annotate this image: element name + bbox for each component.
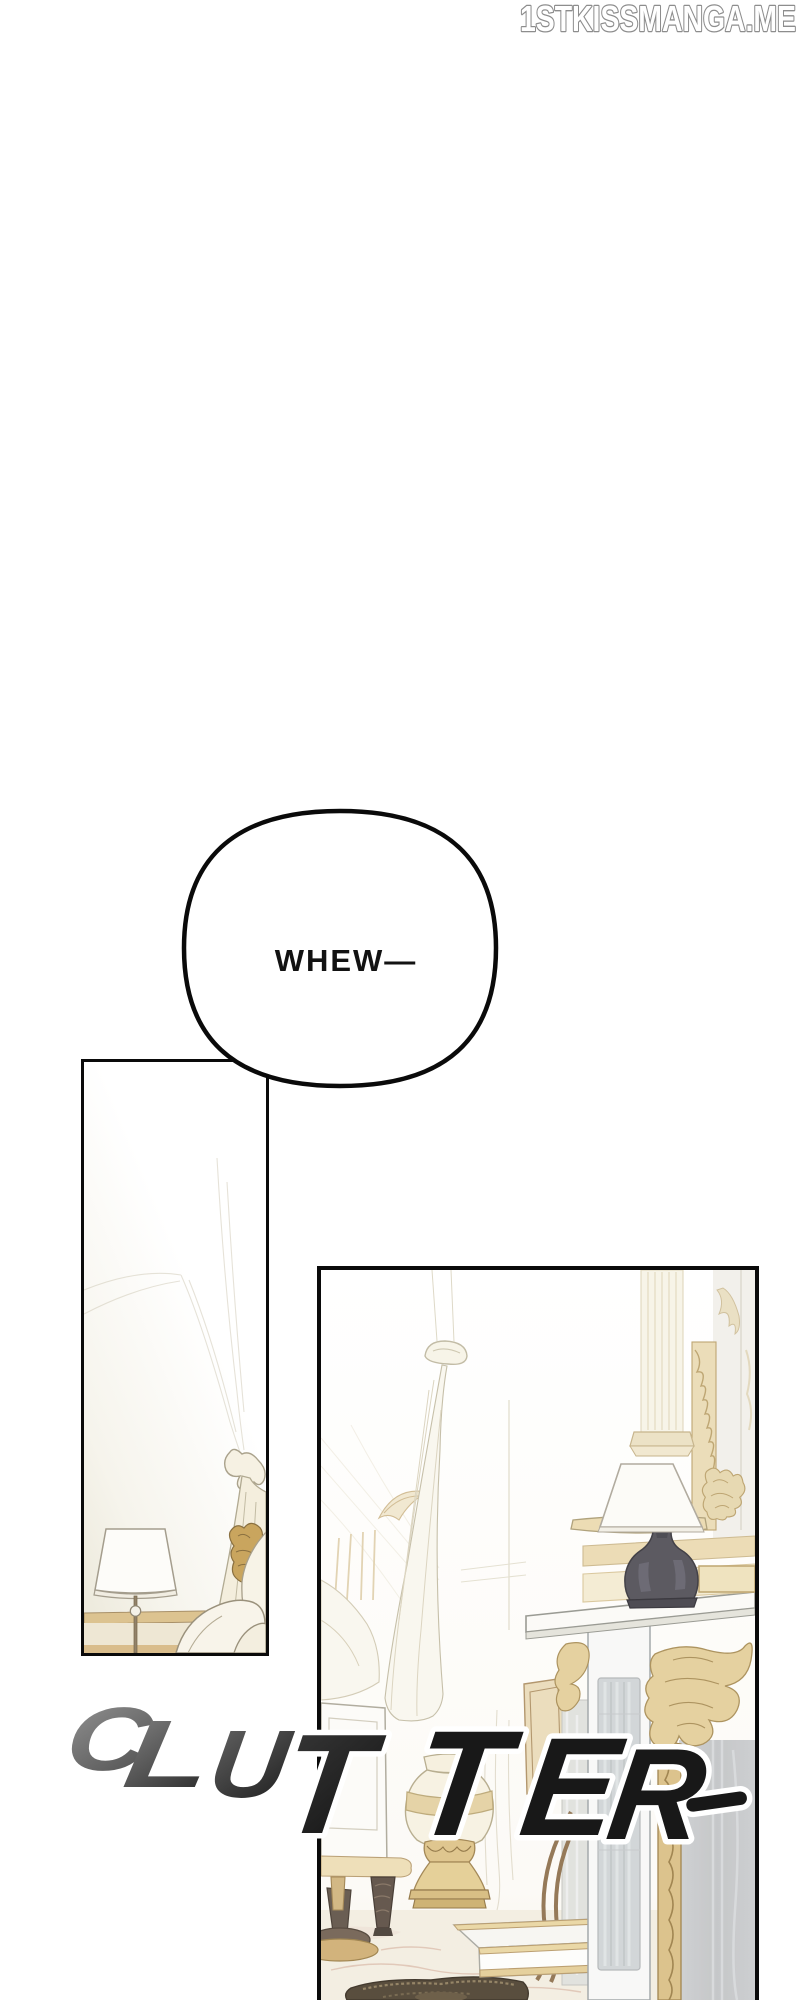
svg-text:1STKISSMANGA.ME: 1STKISSMANGA.ME (520, 0, 796, 39)
svg-text:T: T (403, 1700, 529, 1867)
svg-text:R: R (600, 1722, 714, 1867)
svg-text:WHEW—: WHEW— (275, 943, 418, 978)
svg-text:L: L (118, 1701, 218, 1808)
svg-text:T: T (272, 1706, 392, 1864)
